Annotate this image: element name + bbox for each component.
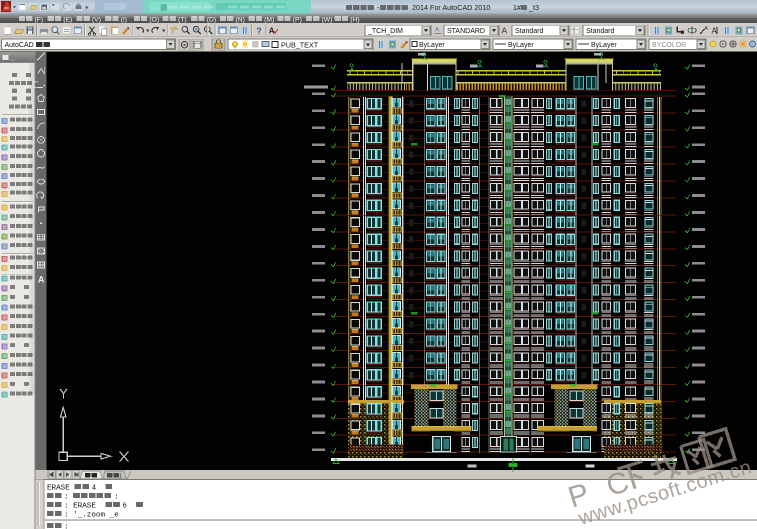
svg-text:(E): (E) [63, 16, 72, 23]
svg-text:AutoCAD: AutoCAD [5, 42, 34, 49]
svg-text:(T): (T) [178, 16, 187, 23]
svg-text:Standard: Standard [515, 28, 544, 35]
svg-text:(N): (N) [235, 16, 244, 23]
svg-text:1: 1 [119, 474, 122, 480]
svg-text:A: A [502, 26, 508, 36]
svg-text::: : [64, 523, 69, 529]
svg-text:(H): (H) [350, 16, 359, 23]
svg-text:?: ? [256, 26, 262, 36]
svg-text:(I): (I) [121, 16, 127, 23]
svg-text:ByLayer: ByLayer [508, 42, 534, 49]
svg-text:: ERASE: : ERASE [64, 502, 96, 510]
svg-text:(M): (M) [264, 16, 274, 23]
svg-text:A: A [38, 274, 45, 284]
svg-text:STANDARD: STANDARD [447, 28, 485, 35]
svg-text:A: A [435, 27, 440, 34]
svg-text:_TCH_DIM: _TCH_DIM [367, 28, 403, 35]
svg-text:4: 4 [92, 484, 97, 492]
svg-text:1#: 1# [513, 3, 521, 12]
svg-text:ERASE: ERASE [47, 484, 70, 492]
svg-text:PUB_TEXT: PUB_TEXT [281, 41, 319, 50]
svg-text:(D): (D) [207, 16, 216, 23]
svg-text:6: 6 [122, 502, 127, 510]
svg-text:BYCOLOR: BYCOLOR [652, 42, 686, 49]
svg-text:▦: ▦ [160, 3, 168, 12]
svg-text:(O): (O) [149, 16, 159, 23]
svg-text:(V): (V) [92, 16, 101, 23]
svg-text:(F): (F) [35, 16, 44, 23]
svg-text:A: A [704, 26, 708, 32]
svg-text:...: ... [10, 57, 15, 63]
svg-text:_t3: _t3 [528, 3, 539, 12]
svg-text:ByLayer: ByLayer [419, 42, 445, 49]
svg-text:(W): (W) [322, 16, 333, 23]
svg-text:ByLayer: ByLayer [591, 42, 617, 49]
svg-text:2014 For AutoCAD 2010: 2014 For AutoCAD 2010 [412, 3, 490, 12]
svg-text:Standard: Standard [586, 28, 615, 35]
svg-text::: : [114, 493, 119, 501]
svg-text:(P): (P) [293, 16, 302, 23]
svg-text::: : [64, 493, 69, 501]
svg-text:: '_.zoom _e: : '_.zoom _e [64, 511, 119, 519]
